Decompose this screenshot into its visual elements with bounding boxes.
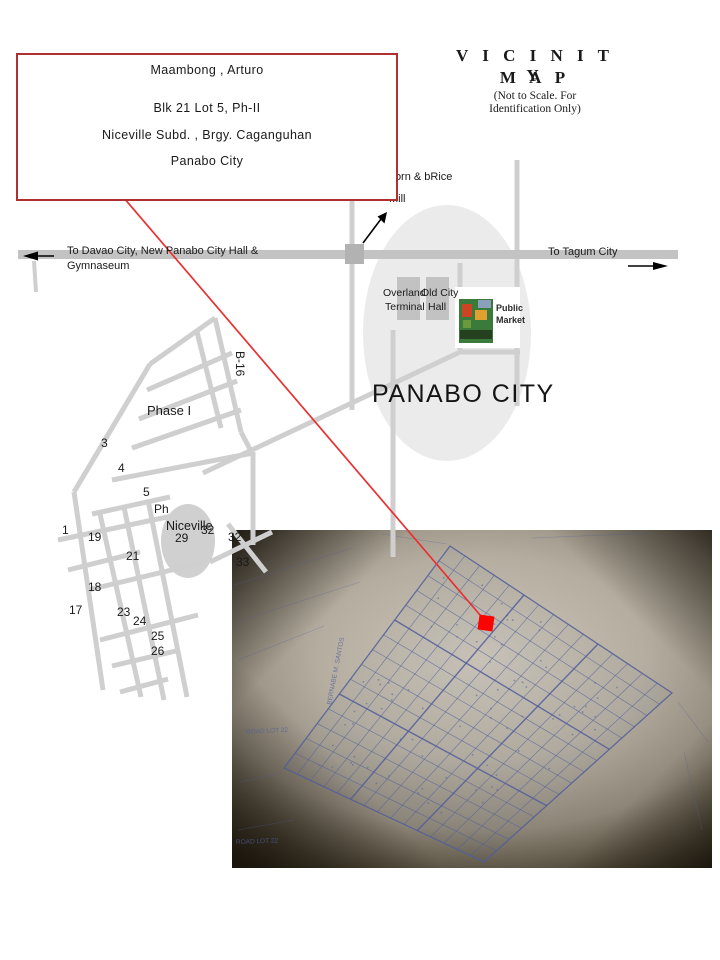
property-marker bbox=[478, 615, 495, 632]
overland-terminal-building bbox=[397, 277, 420, 320]
public-market-box bbox=[455, 287, 520, 348]
east-arrow-icon bbox=[653, 262, 668, 270]
owner-city: Panabo City bbox=[18, 154, 396, 168]
vicinity-map-document: ROAD LOT 22ROAD LOT 22BERNABE M. SANTOS bbox=[0, 0, 720, 960]
mill-junction-square bbox=[345, 244, 364, 264]
owner-blk-lot: Blk 21 Lot 5, Ph-II bbox=[18, 101, 396, 115]
old-city-hall-building bbox=[426, 277, 449, 320]
owner-name: Maambong , Arturo bbox=[18, 63, 396, 77]
owner-subdivision: Niceville Subd. , Brgy. Caganguhan bbox=[18, 128, 396, 142]
owner-info-box: Maambong , Arturo Blk 21 Lot 5, Ph-II Ni… bbox=[16, 53, 398, 201]
